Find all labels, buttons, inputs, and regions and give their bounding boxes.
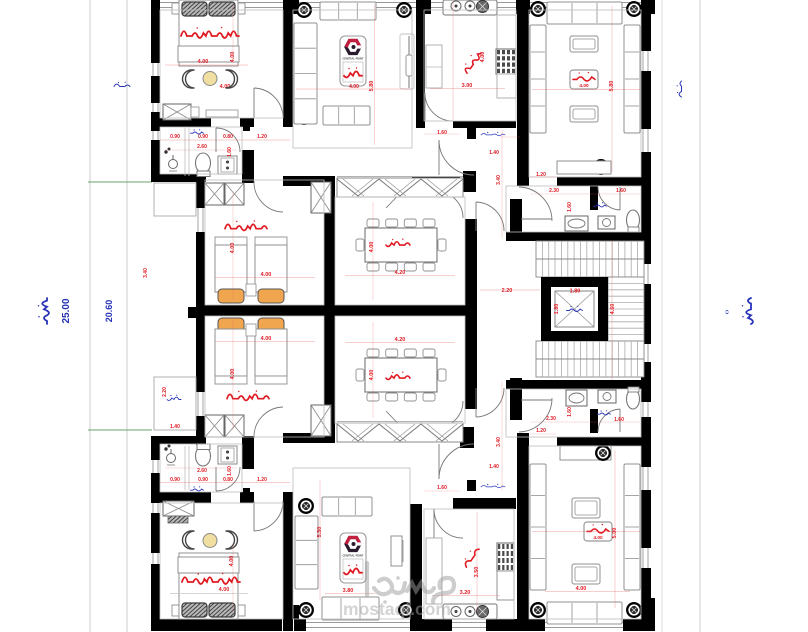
- svg-text:2.20: 2.20: [162, 387, 168, 397]
- svg-text:1.60: 1.60: [437, 485, 447, 491]
- svg-text:2.60: 2.60: [197, 468, 207, 474]
- svg-text:3.20: 3.20: [460, 590, 471, 596]
- svg-text:3.00: 3.00: [462, 83, 473, 89]
- svg-text:20.60: 20.60: [104, 300, 114, 323]
- svg-text:1.40: 1.40: [170, 424, 180, 430]
- svg-text:1.80: 1.80: [554, 304, 560, 315]
- svg-text:4.00: 4.00: [576, 586, 587, 592]
- svg-text:1.60: 1.60: [567, 407, 573, 417]
- svg-text:CENTRAL POINT: CENTRAL POINT: [343, 554, 364, 558]
- svg-text:4.00: 4.00: [261, 272, 272, 278]
- svg-text:3.80: 3.80: [343, 588, 354, 594]
- svg-text:0.90: 0.90: [170, 134, 180, 140]
- svg-text:4.20: 4.20: [395, 270, 406, 276]
- svg-text:1.40: 1.40: [489, 150, 499, 156]
- svg-text:1.20: 1.20: [257, 477, 267, 483]
- svg-text:2.30: 2.30: [546, 416, 556, 422]
- svg-text:3.40: 3.40: [496, 175, 502, 185]
- svg-text:4.00: 4.00: [579, 83, 589, 89]
- svg-text:4.00: 4.00: [369, 242, 375, 253]
- svg-text:5.80: 5.80: [369, 81, 375, 92]
- svg-text:2.60: 2.60: [197, 144, 207, 150]
- svg-text:1.60: 1.60: [567, 202, 573, 212]
- svg-text:0.90: 0.90: [170, 477, 180, 483]
- svg-text:0.80: 0.80: [223, 477, 233, 483]
- svg-text:4.00: 4.00: [480, 52, 486, 63]
- svg-text:‹›: ‹›: [724, 309, 731, 314]
- svg-text:1.60: 1.60: [616, 188, 626, 194]
- svg-text:4.00: 4.00: [261, 336, 272, 342]
- svg-text:CENTRAL POINT: CENTRAL POINT: [343, 57, 364, 61]
- svg-text:1.60: 1.60: [227, 466, 233, 476]
- svg-text:4.00: 4.00: [229, 556, 235, 567]
- svg-text:3.40: 3.40: [496, 437, 502, 447]
- svg-text:1.80: 1.80: [570, 289, 581, 295]
- svg-text:1.60: 1.60: [437, 130, 447, 136]
- svg-text:0.90: 0.90: [198, 477, 208, 483]
- svg-text:4.00: 4.00: [369, 370, 375, 381]
- svg-text:1.40: 1.40: [489, 464, 499, 470]
- svg-text:4.20: 4.20: [395, 337, 406, 343]
- svg-text:25.00: 25.00: [61, 298, 72, 323]
- svg-text:4.60: 4.60: [610, 304, 616, 315]
- svg-text:2.20: 2.20: [502, 288, 513, 294]
- svg-text:2.30: 2.30: [549, 188, 559, 194]
- svg-text:1.60: 1.60: [227, 147, 233, 157]
- svg-text:4.00: 4.00: [198, 59, 209, 65]
- svg-text:3.40: 3.40: [143, 268, 149, 278]
- svg-text:1.20: 1.20: [257, 134, 267, 140]
- svg-text:4.00: 4.00: [593, 535, 603, 541]
- svg-text:1.20: 1.20: [536, 428, 546, 434]
- svg-text:0.90: 0.90: [198, 134, 208, 140]
- svg-text:0.80: 0.80: [223, 134, 233, 140]
- svg-text:4.00: 4.00: [219, 587, 230, 593]
- svg-text:mostaql.com: mostaql.com: [343, 599, 451, 619]
